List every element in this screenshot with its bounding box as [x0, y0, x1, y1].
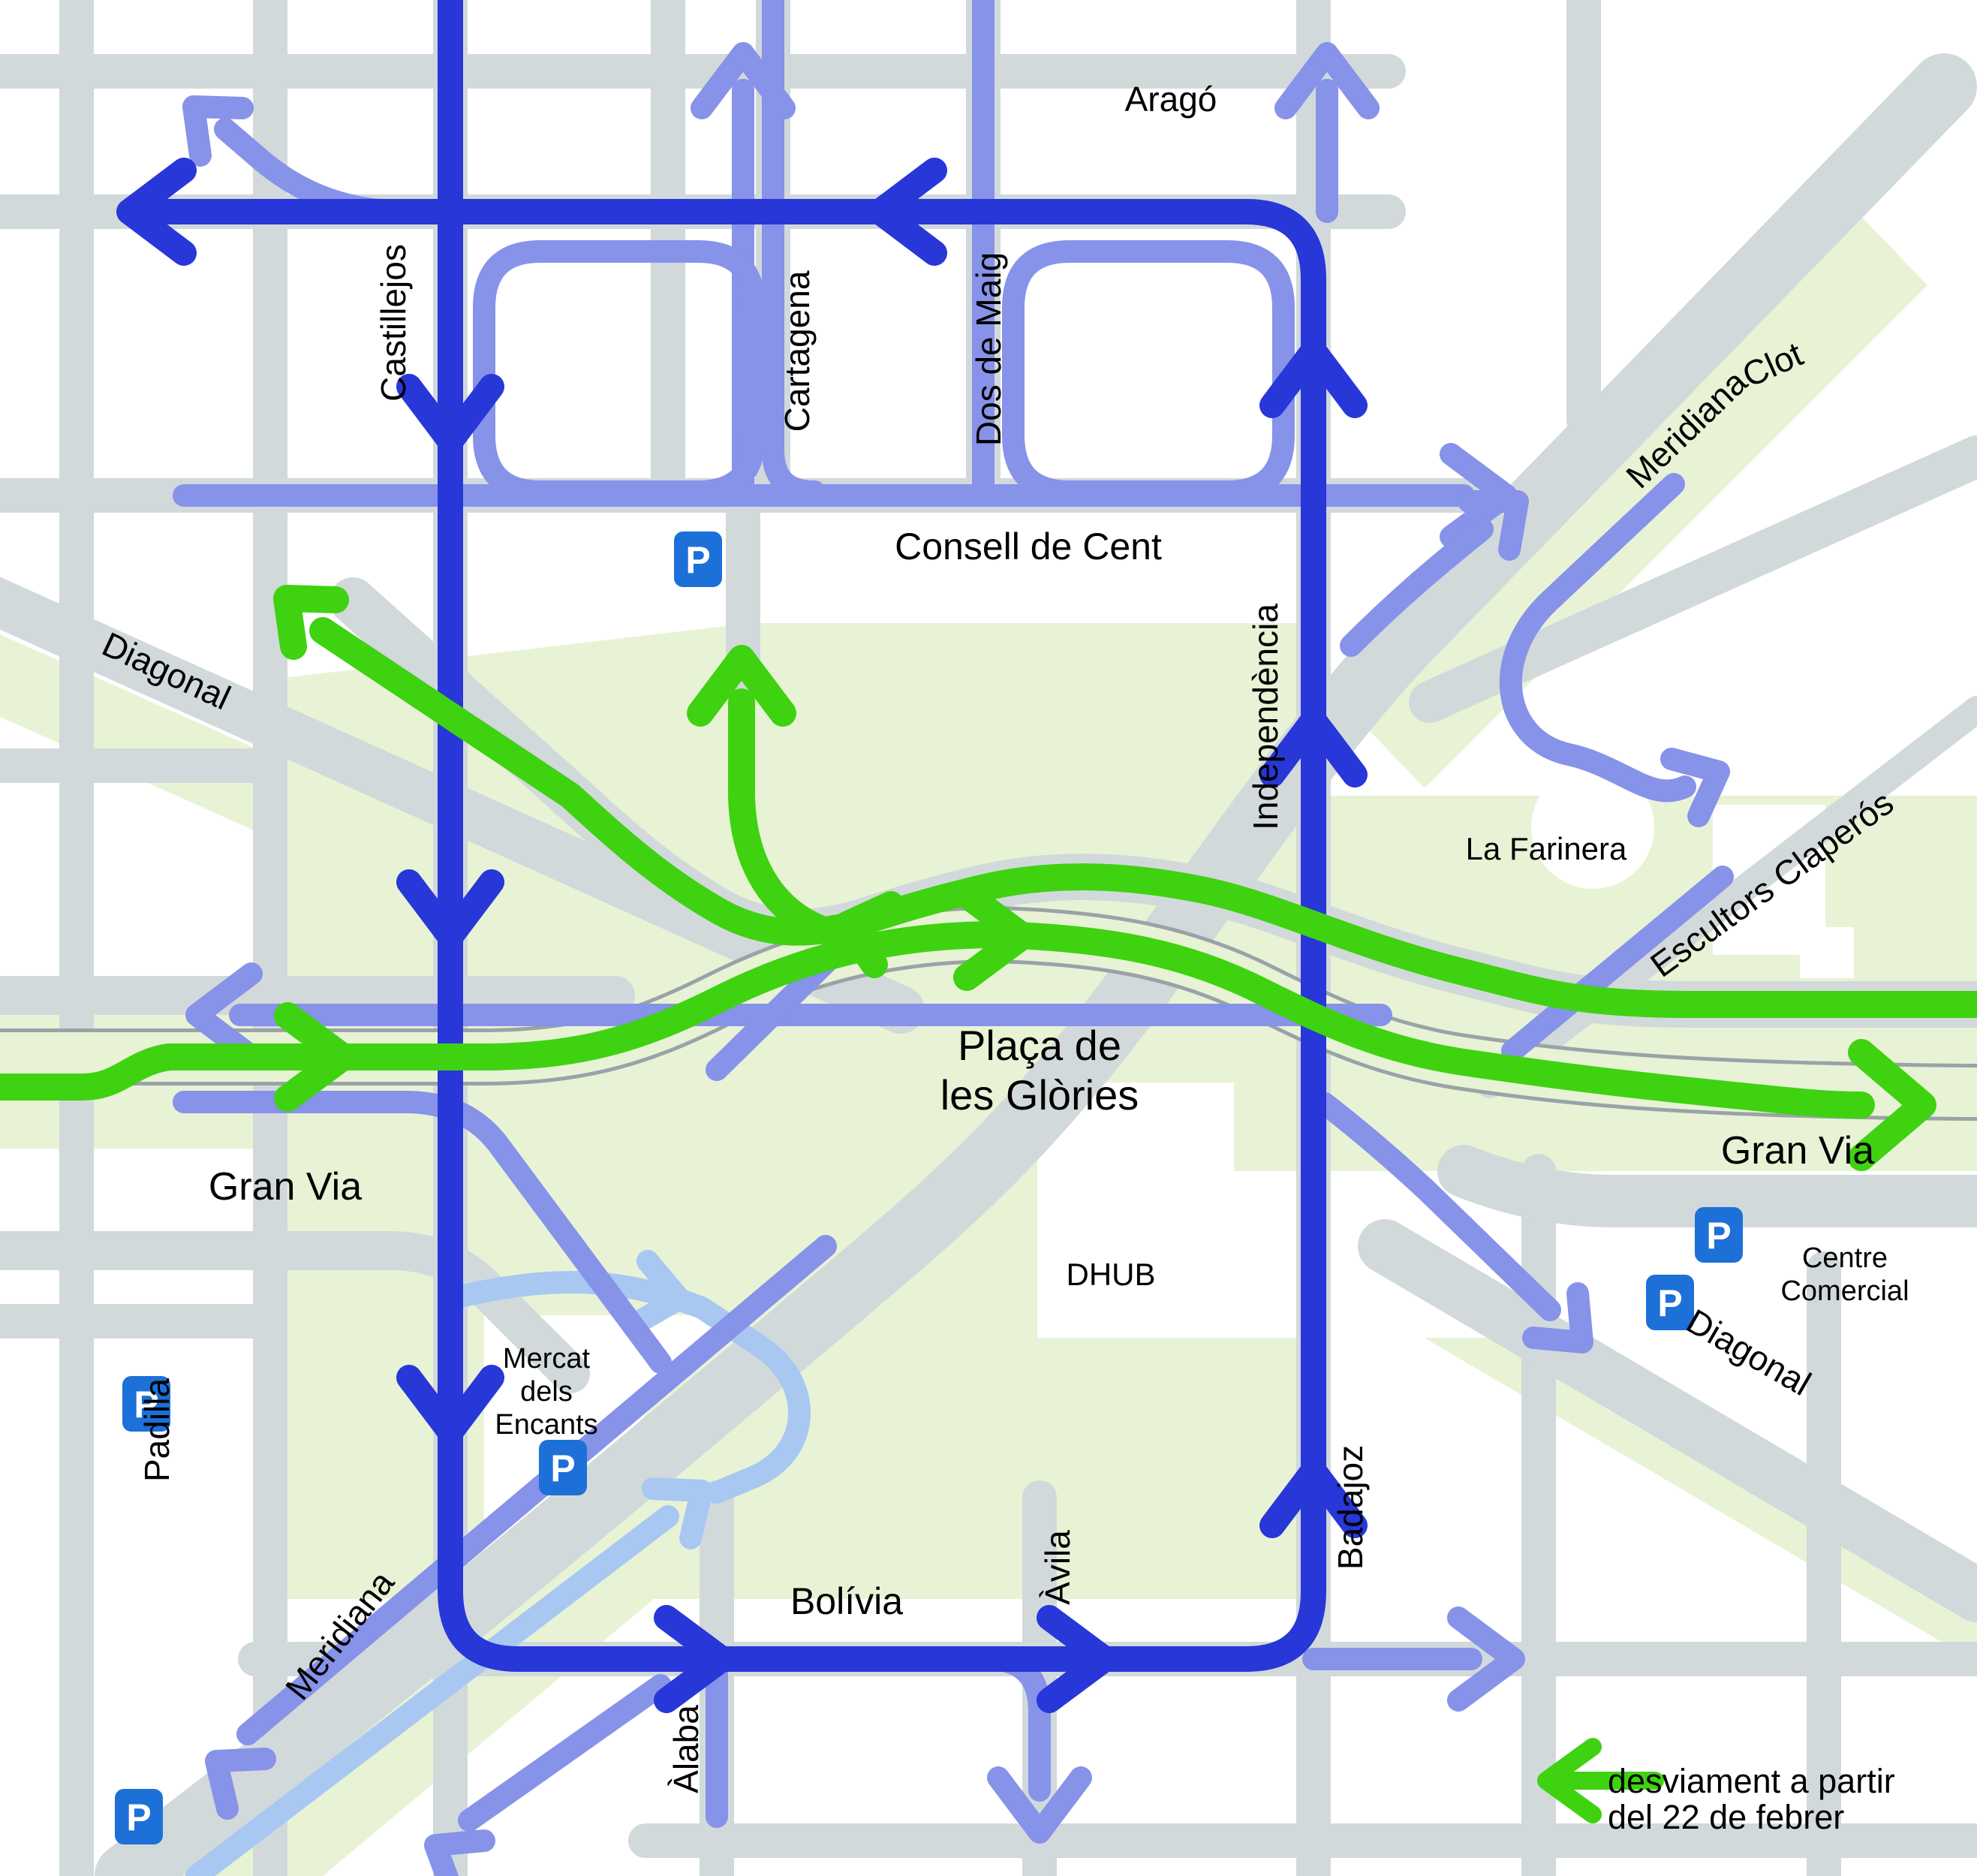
label-consell-de-cent: Consell de Cent [895, 525, 1162, 568]
parking-icon: P [115, 1789, 163, 1844]
label-diagonal-se: Diagonal [1680, 1301, 1817, 1403]
label-alaba: Àlaba [667, 1705, 706, 1793]
label-centre-line2: Comercial [1780, 1275, 1909, 1307]
label-padilla: Padilla [137, 1378, 176, 1483]
legend-text-line2: del 22 de febrer [1608, 1798, 1844, 1836]
svg-text:P: P [550, 1447, 575, 1489]
label-mercat-line1: Mercat [503, 1343, 591, 1375]
label-castillejos: Castillejos [374, 244, 413, 402]
parking-icon: P [1695, 1207, 1743, 1263]
label-centre-line1: Centre [1802, 1242, 1888, 1274]
svg-text:P: P [126, 1796, 151, 1838]
label-avila: Àvila [1038, 1530, 1077, 1605]
legend-text-line1: desviament a partir [1608, 1762, 1895, 1800]
svg-text:P: P [1657, 1282, 1682, 1324]
label-dos-de-maig: Dos de Maig [969, 252, 1008, 446]
label-la-farinera: La Farinera [1466, 831, 1627, 866]
label-gran-via-west: Gran Via [209, 1165, 362, 1209]
label-placa-line2: les Glòries [940, 1071, 1139, 1119]
parking-icon: P [539, 1440, 587, 1495]
label-mercat-line3: Encants [495, 1409, 597, 1441]
parking-icon: P [674, 531, 722, 587]
circulation-loop-east [1013, 251, 1283, 492]
svg-text:P: P [685, 539, 710, 581]
label-gran-via-east: Gran Via [1721, 1129, 1874, 1173]
gran-via-east-road [1464, 1171, 1977, 1201]
label-dhub: DHUB [1066, 1257, 1155, 1292]
circulation-loop-west [484, 251, 754, 492]
label-arago: Aragó [1125, 80, 1217, 119]
svg-text:P: P [1706, 1215, 1731, 1257]
label-mercat-line2: dels [520, 1376, 573, 1408]
label-cartagena: Cartagena [778, 270, 817, 432]
glories-diversion-map: P P P P P P Aragó Castillejos Cartagena … [0, 0, 1977, 1876]
label-placa-line1: Plaça de [958, 1022, 1121, 1069]
label-independencia: Independència [1246, 604, 1285, 830]
legend: desviament a partir del 22 de febrer [1546, 1747, 1895, 1836]
label-bolivia: Bolívia [790, 1580, 903, 1622]
label-badajoz: Badajoz [1331, 1445, 1370, 1570]
